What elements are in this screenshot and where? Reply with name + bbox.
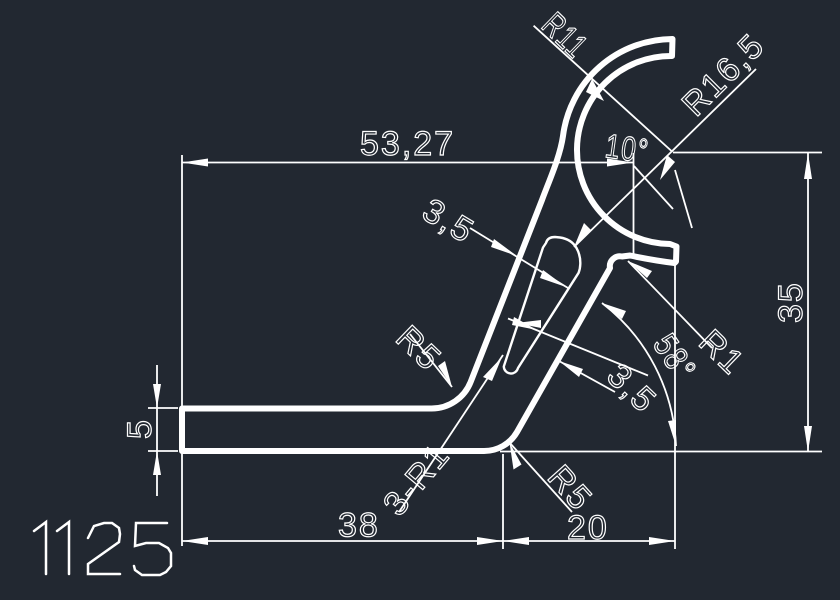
svg-text:10°: 10° — [603, 127, 652, 171]
svg-text:35: 35 — [772, 281, 810, 323]
svg-text:5: 5 — [121, 418, 159, 439]
svg-text:38: 38 — [338, 507, 380, 545]
svg-text:53,27: 53,27 — [360, 125, 455, 163]
